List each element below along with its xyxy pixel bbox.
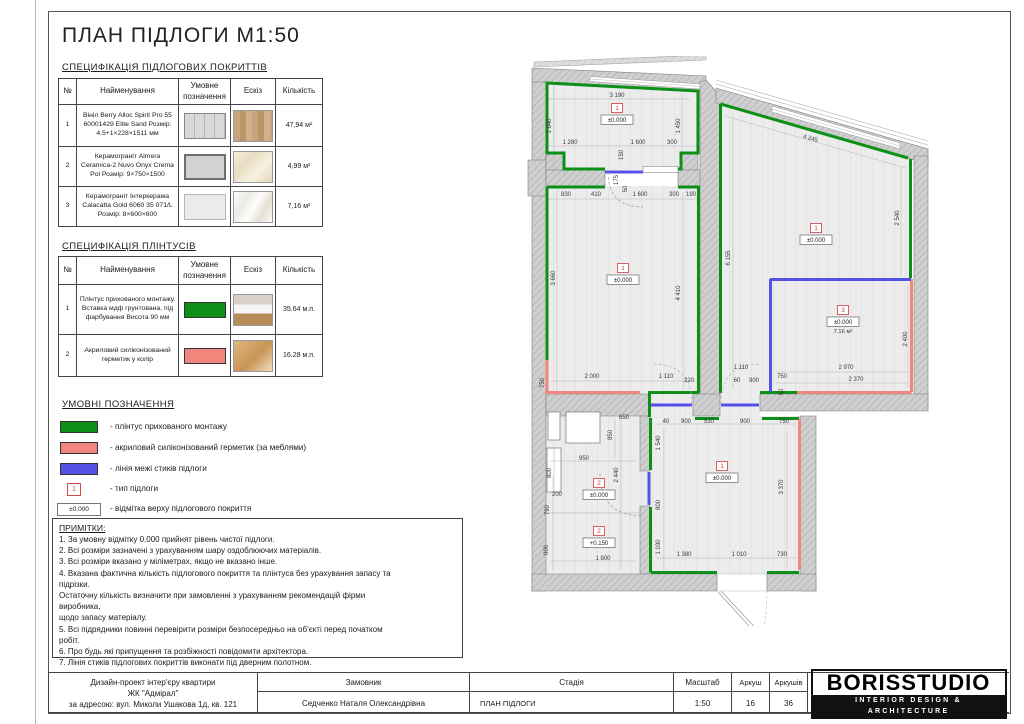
note-line: щодо запасу матеріалу. [59,612,456,623]
symbol-swatch-vinyl [184,113,226,139]
sketch-wood-texture [233,110,273,142]
dimension-label: 650 [619,415,630,421]
quantity: 47,94 м² [276,105,323,147]
notes-box: ПРИМІТКИ: 1. За умовну відмітку 0.000 пр… [52,518,463,658]
col-header: № [59,79,77,105]
quantity: 7,16 м² [276,187,323,227]
dimension-label: 1 110 [734,365,749,371]
quantity: 16.28 м.п. [276,335,323,377]
sheet-edge-line [35,0,36,724]
dimension-label: 4 410 [676,285,682,301]
legend-green-bar [60,421,98,433]
col-header: Найменування [77,257,179,285]
floor-type-number: 1 [615,105,619,112]
door-swing-arc [760,591,767,626]
dimension-label: 50 [779,388,785,395]
logo-text: BORISSTUDIO [813,671,1005,695]
dimension-label: 800 [547,467,553,478]
dimension-label: 790 [545,504,551,515]
legend-pink-bar [60,442,98,454]
floor-type-number: 3 [841,307,845,314]
sketch-crema-marble [233,151,273,183]
material-name: Вініл Berry Alloc Spirit Pro 55 60001429… [77,105,179,147]
sheet-label: Аркуш [731,673,769,692]
elevation-value: ±0.000 [608,118,627,124]
stage-label: Стадія [469,673,673,692]
col-header: Кількість [276,79,323,105]
project-line: за адресою: вул. Миколи Ушакова 1д, кв. … [69,699,237,710]
elevation-value: ±0.000 [713,476,732,482]
dimension-label: 900 [544,544,550,555]
dimension-label: 300 [669,192,680,198]
dimension-label: 950 [579,456,590,462]
note-line: 6. Про будь які припущення та розбіжност… [59,646,456,657]
spec-floor-table: № Найменування Умовне позначення Ескіз К… [58,78,323,227]
col-header: Ескіз [231,257,276,285]
dimension-label: 2 970 [838,365,854,371]
note-line: 2. Всі розміри зазначені з урахуванням ш… [59,545,456,556]
borisstudio-logo: BORISSTUDIO INTERIOR DESIGN & ARCHITECTU… [811,669,1007,719]
spec-floor-heading: СПЕЦИФІКАЦІЯ ПІДЛОГОВИХ ПОКРИТТІВ [62,62,267,73]
project-info: Дизайн-проект інтер'єру квартири ЖК "Адм… [49,673,257,714]
stage-value: ПЛАН ПІДЛОГИ [469,692,673,714]
dimension-label: 50 [623,185,629,192]
note-line: 7. Лінія стиків підлогових покриттів вик… [59,657,456,668]
note-line: виробника, [59,601,456,612]
elevation-value: +0.150 [590,541,609,547]
dimension-label: 750 [779,419,790,425]
note-line: 4. Вказана фактична кількість підлоговог… [59,568,456,579]
dimension-label: 410 [591,192,602,198]
legend-label: - відмітка верху підлогового покриття [110,504,251,513]
row-num: 2 [59,335,77,377]
client-name: Седченко Наталя Олександрівна [257,692,469,714]
dimension-label: 530 [704,419,715,425]
entrance-door-leaf [718,592,760,626]
dimension-label: 900 [681,419,692,425]
notes-heading: ПРИМІТКИ: [59,523,456,533]
floor-type-number: 1 [814,225,818,232]
door-leaf [643,167,678,173]
col-header: Кількість [276,257,323,285]
dimension-label: 1 640 [547,118,553,134]
elevation-value: ±0.000 [807,238,826,244]
scale-value: 1:50 [673,692,731,714]
spec-plinth-table: № Найменування Умовне позначення Ескіз К… [58,256,323,377]
note-line: підрізки. [59,579,456,590]
col-header: Найменування [77,79,179,105]
scale-label: Масштаб [673,673,731,692]
dimension-label: 900 [740,419,751,425]
material-name: Акриловий силіконізований герметик у кол… [77,335,179,377]
dimension-label: 1 110 [659,374,674,380]
dimension-label: 750 [540,377,546,388]
material-name: Плінтус прихованого монтажу. Вставка мдф… [77,285,179,335]
dimension-label: 3 370 [779,479,785,495]
legend-label: - акриловий силіконізований герметик (за… [110,443,306,452]
sketch-plinth-photo [233,294,273,326]
dimension-label: 2 440 [614,467,620,483]
sheets-value: 36 [769,692,807,714]
dimension-label: 3 190 [609,93,625,99]
dimension-label: 730 [777,552,788,558]
dimension-label: 1 030 [656,539,662,555]
col-header: Умовне позначення [179,257,231,285]
elevation-value: ±0.000 [590,493,609,499]
dimension-label: 1 800 [595,556,611,562]
project-line: ЖК "Адмірал" [128,688,179,699]
floor-plan: 3 1901 6401 4501 2801 600300150175508304… [520,56,940,626]
symbol-swatch-pink-sealant [184,348,226,364]
floor-type-number: 2 [597,528,601,535]
material-name: Керамограніт Almera Ceramica-2 Nuvo Onyx… [77,147,179,187]
floor-type-number: 1 [621,265,625,272]
quantity: 4,99 м² [276,147,323,187]
symbol-swatch-green-plinth [184,302,226,318]
dimension-label: 850 [608,429,614,440]
row-num: 3 [59,187,77,227]
dimension-label: 175 [614,174,620,185]
dimension-label: 1 450 [676,118,682,134]
col-header: Ескіз [231,79,276,105]
symbol-swatch-tile [184,154,226,180]
legend-elevation-box: ±0.000 [57,503,101,516]
dimension-label: 1 540 [656,435,662,451]
sketch-calacatta-marble [233,191,273,223]
sheets-label: Аркушів [769,673,807,692]
client-label: Замовник [257,673,469,692]
logo-cell: BORISSTUDIO INTERIOR DESIGN & ARCHITECTU… [807,673,1009,714]
project-line: Дизайн-проект інтер'єру квартири [90,677,215,688]
logo-subtext: INTERIOR DESIGN & ARCHITECTURE [813,695,1005,717]
legend-blue-bar [60,463,98,475]
dimension-label: 2 370 [848,377,864,383]
dimension-label: 190 [686,192,697,198]
col-header: № [59,257,77,285]
legend-label: - плінтус прихованого монтажу [110,422,227,431]
floor-type-number: 1 [720,463,724,470]
legend-label: - лінія межі стиків підлоги [110,464,207,473]
dimension-label: 750 [777,374,788,380]
symbol-swatch-tile-light [184,194,226,220]
dimension-label: 6 155 [726,250,732,266]
dimension-label: 2 000 [584,374,600,380]
sheet-value: 16 [731,692,769,714]
row-num: 1 [59,285,77,335]
note-line: Остаточну кількість визначити при замовл… [59,590,456,601]
dimension-label: 3 660 [551,270,557,286]
floor-areas [546,82,912,591]
legend-floor-type-box: 1 [67,483,81,496]
dimension-label: 40 [663,419,670,425]
sketch-sealant-photo [233,340,273,372]
dimension-label: 1 600 [630,140,646,146]
title-block: Дизайн-проект інтер'єру квартири ЖК "Адм… [48,672,1009,713]
note-line: робіт. [59,635,456,646]
entrance-door-leaf [721,591,763,626]
dimension-label: 60 [734,378,741,384]
page-title: ПЛАН ПІДЛОГИ М1:50 [62,24,300,48]
material-name: Керамограніт Інтеркерама Calacatta Gold … [77,187,179,227]
dimension-label: 1 280 [562,140,578,146]
dimension-label: 2 540 [895,210,901,226]
dimension-label: 1 380 [676,552,692,558]
dimension-label: 2 400 [903,331,909,347]
note-line: 3. Всі розміри вказано у міліметрах, якщ… [59,556,456,567]
row-num: 1 [59,105,77,147]
dimension-label: 900 [749,378,760,384]
dimension-label: 830 [561,192,572,198]
dimension-label: 300 [667,140,678,146]
legend-label: - тип підлоги [110,484,158,493]
dimension-label: 1 600 [632,192,648,198]
area-value: 7.16 м² [834,329,853,335]
note-line: 1. За умовну відмітку 0.000 прийнят ріве… [59,534,456,545]
legend-heading: УМОВНІ ПОЗНАЧЕННЯ [62,399,174,410]
col-header: Умовне позначення [179,79,231,105]
quantity: 35.64 м.п. [276,285,323,335]
elevation-value: ±0.000 [834,320,853,326]
spec-plinth-heading: СПЕЦИФІКАЦІЯ ПЛІНТУСІВ [62,241,196,252]
dimension-label: 1 010 [731,552,747,558]
elevation-value: ±0.000 [614,278,633,284]
dimension-label: 800 [656,499,662,510]
dimension-label: 150 [619,149,625,160]
row-num: 2 [59,147,77,187]
floor-type-number: 2 [597,480,601,487]
note-line: 5. Всі підрядники повинні перевірити роз… [59,624,456,635]
dimension-label: 200 [552,492,563,498]
dimension-label: 220 [684,378,695,384]
